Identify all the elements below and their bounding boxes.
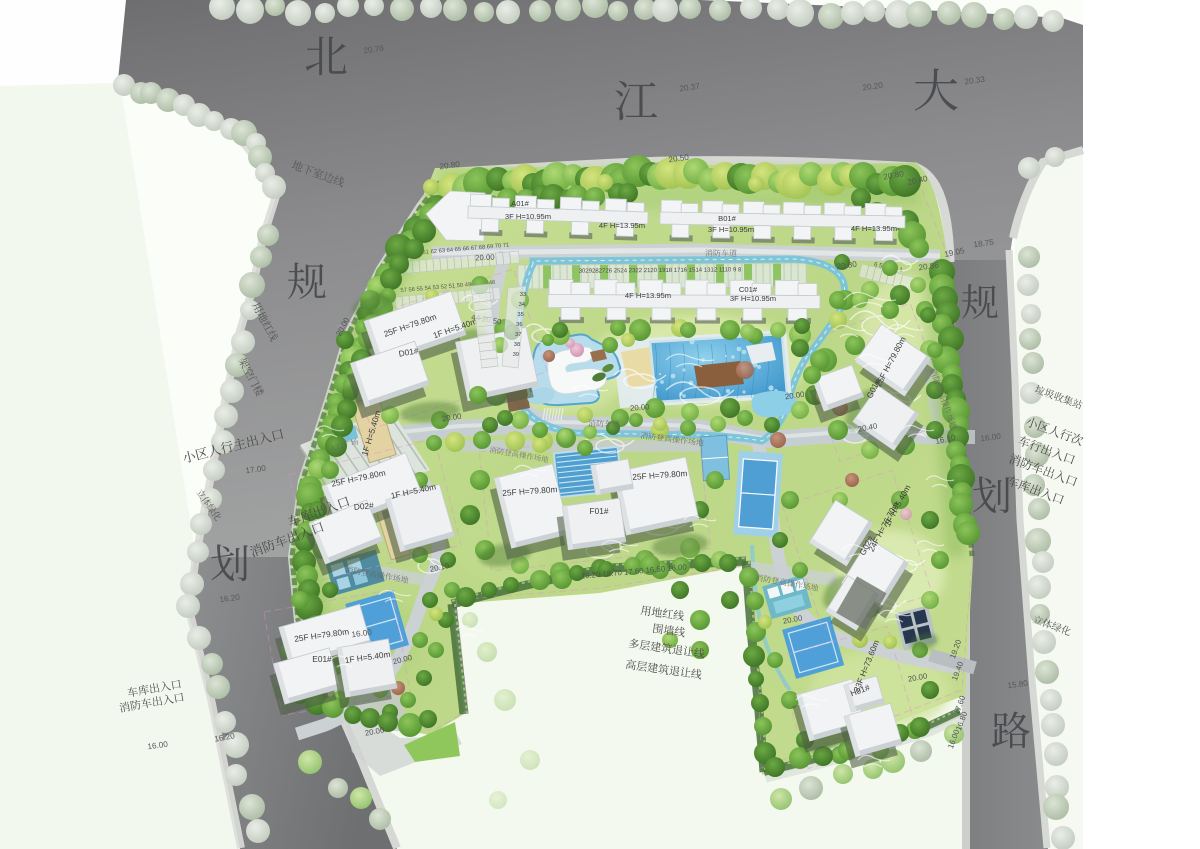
svg-text:4F H=13.95m: 4F H=13.95m <box>851 224 897 233</box>
svg-text:3F H=10.95m: 3F H=10.95m <box>730 294 776 303</box>
svg-text:35: 35 <box>517 312 523 318</box>
svg-text:36: 36 <box>516 322 522 328</box>
svg-text:3F H=10.95m: 3F H=10.95m <box>708 225 754 234</box>
svg-text:D02#: D02# <box>353 500 374 512</box>
svg-text:3F H=10.95m: 3F H=10.95m <box>505 212 551 221</box>
svg-text:4F H=13.95m: 4F H=13.95m <box>625 291 671 300</box>
svg-text:34: 34 <box>519 302 526 308</box>
svg-text:C01#: C01# <box>739 285 758 294</box>
svg-text:B01#: B01# <box>718 214 737 223</box>
svg-text:A01#: A01# <box>511 199 530 208</box>
svg-text:20.00: 20.00 <box>630 402 651 413</box>
svg-text:33: 33 <box>520 292 526 298</box>
svg-text:4F H=13.95m: 4F H=13.95m <box>599 221 645 230</box>
svg-text:F01#: F01# <box>590 506 609 516</box>
svg-text:20.00: 20.00 <box>475 252 496 262</box>
svg-text:E01#: E01# <box>312 654 332 664</box>
svg-text:38: 38 <box>514 342 520 348</box>
svg-text:39: 39 <box>513 352 519 358</box>
svg-text:37: 37 <box>515 332 521 338</box>
